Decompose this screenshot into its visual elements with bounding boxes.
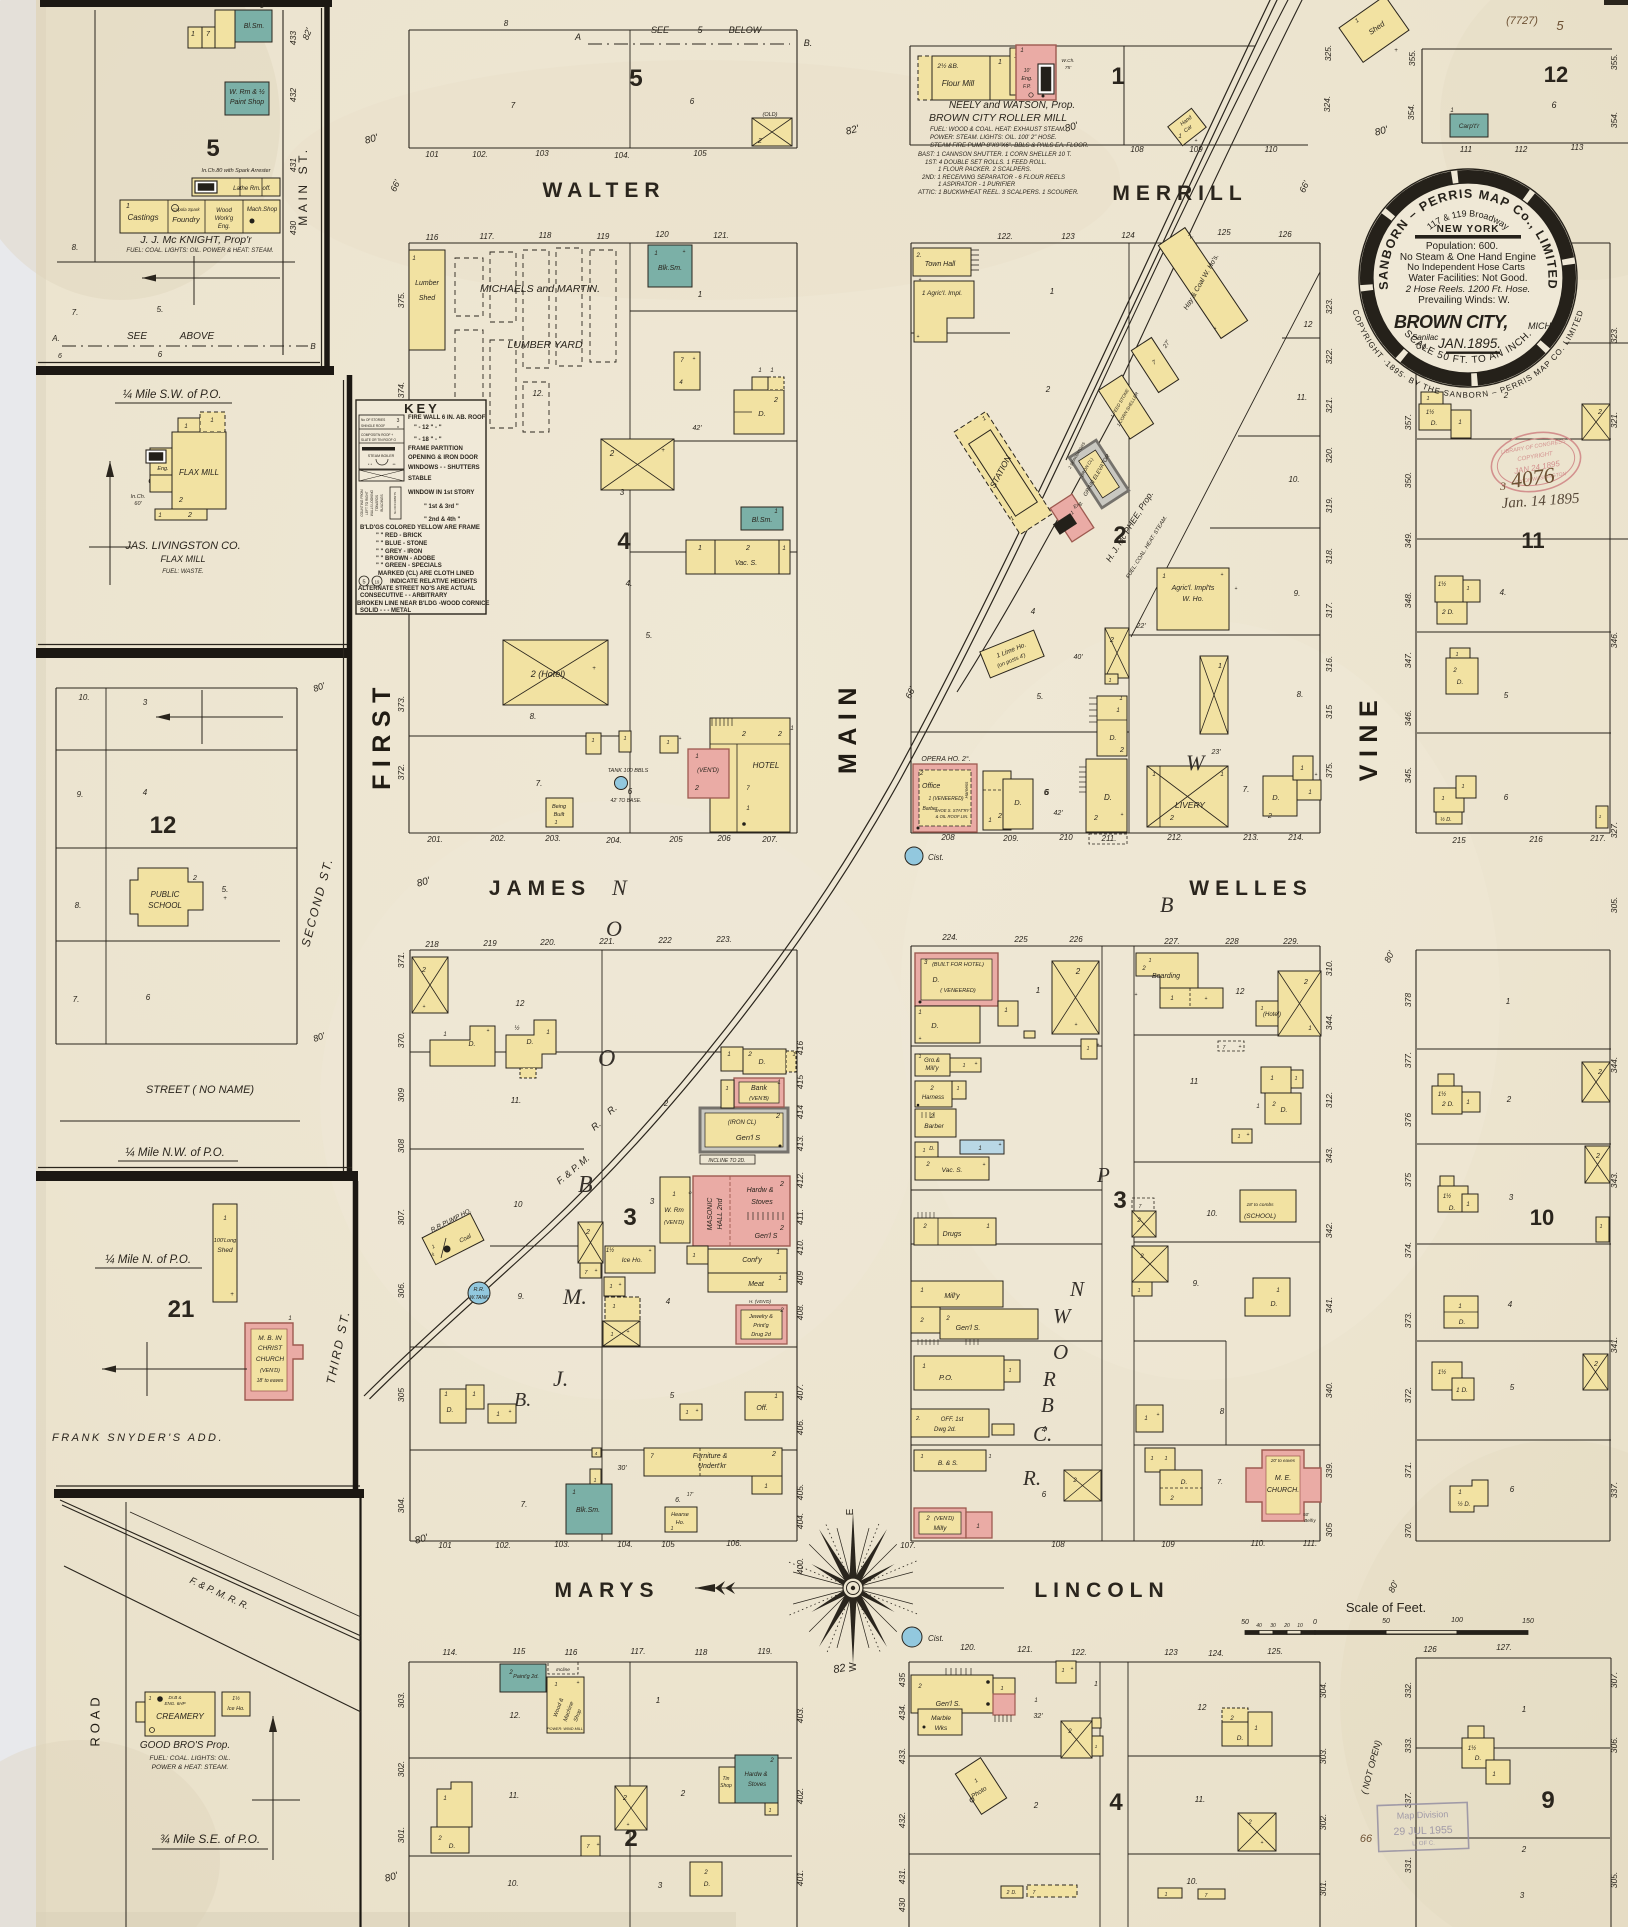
svg-text:8.: 8.	[1297, 690, 1304, 699]
svg-text:414: 414	[795, 1105, 805, 1119]
svg-text:2.: 2.	[915, 1416, 921, 1422]
svg-text:409: 409	[795, 1271, 805, 1285]
svg-text:+: +	[1097, 1042, 1100, 1048]
svg-text:+: +	[661, 448, 665, 454]
svg-text:1: 1	[1458, 1304, 1461, 1310]
svg-text:303.: 303.	[396, 1692, 406, 1709]
svg-text:327.: 327.	[1609, 822, 1619, 839]
svg-text:109: 109	[1161, 1540, 1175, 1549]
svg-text:346.: 346.	[1609, 632, 1619, 649]
svg-text:D.: D.	[1012, 1890, 1017, 1896]
svg-text:Population: 600.: Population: 600.	[1426, 241, 1498, 252]
svg-text:Gen'l S: Gen'l S	[736, 1133, 760, 1142]
svg-text:6: 6	[1504, 793, 1509, 802]
svg-text:10': 10'	[1024, 68, 1032, 74]
svg-text:349.: 349.	[1403, 532, 1413, 549]
svg-text:12.: 12.	[509, 1711, 520, 1720]
svg-text:116: 116	[565, 1648, 578, 1657]
svg-text:A.: A.	[51, 334, 60, 343]
svg-text:207.: 207.	[761, 835, 778, 844]
svg-text:3: 3	[1509, 1193, 1514, 1202]
svg-text:1: 1	[774, 1394, 777, 1400]
svg-text:Ice Ho.: Ice Ho.	[227, 1706, 244, 1712]
svg-text:2: 2	[694, 785, 699, 792]
svg-text:1 D.: 1 D.	[1456, 1387, 1468, 1394]
svg-text:D.: D.	[1110, 735, 1117, 742]
svg-text:1: 1	[1061, 1668, 1064, 1674]
svg-text:210: 210	[1058, 833, 1073, 842]
svg-text:432.: 432.	[897, 1812, 907, 1829]
svg-text:433: 433	[288, 31, 298, 45]
svg-text:B'LD'GS COLORED YELLOW ARE FRA: B'LD'GS COLORED YELLOW ARE FRAME	[360, 525, 480, 531]
svg-text:1: 1	[656, 1696, 660, 1705]
svg-text:321.: 321.	[1609, 412, 1619, 429]
svg-text:FLAX MILL: FLAX MILL	[160, 554, 205, 564]
svg-text:1: 1	[158, 513, 161, 519]
svg-text:SHINGLE ROOF: SHINGLE ROOF	[361, 424, 385, 428]
svg-text:9: 9	[1541, 1787, 1554, 1814]
svg-text:8.: 8.	[75, 901, 82, 910]
svg-text:Agric'l. Impl'ts: Agric'l. Impl'ts	[1171, 585, 1215, 592]
svg-text:218: 218	[424, 940, 439, 949]
svg-text:Shop: Shop	[720, 1783, 732, 1789]
svg-text:F.P.: F.P.	[1023, 84, 1031, 90]
svg-text:Dwg 2d.: Dwg 2d.	[934, 1427, 956, 1433]
svg-text:1½: 1½	[1438, 1091, 1446, 1098]
svg-text:406.: 406.	[795, 1419, 805, 1436]
svg-text:1: 1	[769, 1808, 772, 1814]
svg-text:312.: 312.	[1324, 1092, 1334, 1109]
svg-text:110: 110	[1265, 145, 1278, 154]
svg-text:+: +	[999, 1142, 1002, 1148]
svg-text:430: 430	[288, 221, 298, 235]
svg-text:104.: 104.	[617, 1540, 633, 1549]
svg-text:NEW YORK: NEW YORK	[1437, 224, 1500, 235]
svg-text:1: 1	[1456, 652, 1459, 658]
svg-text:7: 7	[511, 101, 516, 110]
svg-text:+: +	[423, 1004, 426, 1010]
svg-text:10: 10	[514, 1200, 523, 1209]
svg-text:Gen'l S.: Gen'l S.	[936, 1701, 961, 1708]
svg-text:100: 100	[1451, 1617, 1463, 1624]
svg-text:2: 2	[1452, 668, 1457, 674]
svg-text:5: 5	[206, 135, 219, 162]
svg-text:1: 1	[782, 546, 785, 552]
svg-text:+: +	[230, 1292, 234, 1298]
svg-text:109: 109	[1189, 145, 1203, 154]
svg-text:+: +	[1157, 1412, 1160, 1418]
svg-text:In.Ch.: In.Ch.	[131, 494, 146, 500]
svg-text:+: +	[592, 666, 596, 672]
svg-text:2: 2	[1597, 409, 1602, 416]
svg-text:12: 12	[1304, 320, 1313, 329]
svg-text:2: 2	[622, 1795, 627, 1802]
svg-text:347.: 347.	[1403, 652, 1413, 669]
svg-text:+: +	[1221, 572, 1224, 578]
svg-text:W: W	[1053, 1304, 1073, 1328]
svg-text:2: 2	[1033, 1801, 1039, 1810]
svg-text:+: +	[1121, 812, 1124, 818]
svg-text:Meat: Meat	[748, 1281, 765, 1288]
svg-text:W. Rm: W. Rm	[664, 1207, 684, 1214]
svg-text:1: 1	[1000, 1686, 1003, 1692]
svg-text:Vac. S.: Vac. S.	[735, 560, 757, 567]
svg-text:305.: 305.	[1609, 1872, 1619, 1889]
svg-text:Cist.: Cist.	[928, 1634, 944, 1643]
svg-text:1: 1	[671, 1526, 674, 1532]
svg-text:11.: 11.	[509, 1791, 520, 1800]
svg-text:6: 6	[628, 787, 633, 796]
svg-text:11.: 11.	[511, 1096, 522, 1105]
svg-text:Tin: Tin	[723, 1776, 730, 1782]
svg-text:(VEN'D): (VEN'D)	[260, 1368, 280, 1374]
svg-text:5.: 5.	[1037, 692, 1044, 701]
svg-text:+: +	[1261, 1840, 1264, 1846]
svg-text:2 D.: 2 D.	[1441, 609, 1454, 616]
svg-text:6: 6	[146, 993, 151, 1002]
svg-text:150: 150	[1522, 1618, 1534, 1625]
svg-text:1: 1	[1170, 996, 1173, 1002]
svg-text:5: 5	[1510, 1383, 1515, 1392]
svg-text:J. J. Mc KNIGHT, Prop'r: J. J. Mc KNIGHT, Prop'r	[139, 234, 252, 246]
svg-text:2: 2	[919, 1318, 924, 1324]
svg-text:ROAD: ROAD	[88, 1693, 103, 1746]
svg-text:1: 1	[746, 806, 749, 812]
svg-text:110.: 110.	[1251, 1539, 1266, 1548]
svg-text:371.: 371.	[1403, 1462, 1413, 1479]
svg-text:100'Long: 100'Long	[214, 1238, 237, 1244]
svg-text:6.: 6.	[675, 1497, 681, 1504]
svg-text:1: 1	[191, 31, 195, 38]
svg-text:4: 4	[1031, 607, 1036, 616]
svg-text:Bl.Sm.: Bl.Sm.	[752, 517, 773, 524]
svg-text:408.: 408.	[795, 1304, 805, 1321]
svg-text:Eng.: Eng.	[157, 466, 168, 472]
svg-text:1: 1	[920, 1288, 923, 1294]
svg-text:304.: 304.	[1318, 1682, 1328, 1699]
svg-text:Blk.Sm.: Blk.Sm.	[576, 1507, 600, 1514]
svg-text:N: N	[1069, 1277, 1085, 1301]
svg-text:+: +	[975, 1061, 978, 1067]
svg-text:1: 1	[126, 203, 130, 210]
svg-text:122.: 122.	[1071, 1648, 1087, 1657]
svg-text:1: 1	[727, 1052, 730, 1058]
svg-text:9.: 9.	[77, 790, 84, 799]
svg-text:Prevailing Winds: W.: Prevailing Winds: W.	[1418, 295, 1510, 306]
svg-text:7: 7	[1139, 1204, 1142, 1210]
svg-text:Stoves: Stoves	[748, 1782, 766, 1788]
svg-text:Mill'y: Mill'y	[944, 1293, 960, 1300]
svg-text:1: 1	[986, 1224, 989, 1230]
svg-text:JAN.1895.: JAN.1895.	[1437, 336, 1501, 351]
svg-text:FRANK SNYDER'S ADD.: FRANK SNYDER'S ADD.	[52, 1432, 224, 1444]
svg-text:(VEN'D): (VEN'D)	[697, 768, 719, 774]
svg-text:10.: 10.	[1206, 1209, 1217, 1218]
svg-text:2: 2	[192, 875, 197, 882]
svg-text:Marble: Marble	[931, 1715, 951, 1722]
svg-text:B: B	[310, 342, 316, 351]
svg-text:1: 1	[443, 1796, 446, 1802]
svg-text:1: 1	[1276, 1288, 1279, 1294]
svg-text:Off.: Off.	[756, 1405, 767, 1412]
svg-text:(VEN'D): (VEN'D)	[664, 1220, 684, 1226]
svg-text:2.: 2.	[915, 253, 921, 259]
svg-text:1: 1	[1522, 1705, 1526, 1714]
svg-text:2: 2	[421, 967, 426, 974]
svg-text:1: 1	[1308, 790, 1311, 796]
svg-text:1: 1	[923, 1148, 926, 1154]
svg-text:19: 19	[375, 580, 380, 585]
svg-text:66: 66	[1360, 1833, 1373, 1845]
svg-text:Mill'y: Mill'y	[925, 1066, 939, 1072]
svg-text:1: 1	[1506, 997, 1510, 1006]
svg-text:2: 2	[1247, 1820, 1252, 1826]
svg-text:2: 2	[997, 813, 1002, 820]
svg-text:2: 2	[1141, 966, 1146, 972]
svg-text:Eng.: Eng.	[218, 224, 230, 230]
svg-text:42': 42'	[692, 425, 702, 432]
svg-text:Ho.: Ho.	[676, 1520, 685, 1526]
svg-text:BELOW: BELOW	[729, 25, 763, 35]
svg-text:348.: 348.	[1403, 592, 1413, 609]
svg-text:H. (VEN'D): H. (VEN'D)	[749, 1299, 772, 1304]
svg-text:COUNTING FROM: COUNTING FROM	[360, 489, 364, 517]
svg-text:121.: 121.	[713, 231, 729, 240]
svg-text:301.: 301.	[396, 1827, 406, 1844]
svg-text:1: 1	[685, 1410, 688, 1416]
svg-text:Incline: Incline	[556, 1667, 570, 1673]
svg-text:P: P	[1096, 1163, 1110, 1187]
svg-text:339.: 339.	[1324, 1462, 1334, 1479]
svg-text:MARYS: MARYS	[554, 1579, 659, 1602]
svg-text:2 (Hotel): 2 (Hotel)	[530, 669, 566, 679]
svg-text:103: 103	[535, 149, 549, 158]
svg-text:COMPOSITN ROOF +: COMPOSITN ROOF +	[361, 433, 393, 437]
svg-text:1: 1	[998, 59, 1002, 66]
svg-text:372.: 372.	[396, 764, 406, 781]
svg-text:1 Agric'l. Impl.: 1 Agric'l. Impl.	[922, 290, 963, 297]
svg-text:D.: D.	[1271, 1301, 1278, 1308]
svg-text:W: W	[848, 1662, 859, 1672]
svg-text:1ST: 4 DOUBLE SET ROLLS. 1 FE: 1ST: 4 DOUBLE SET ROLLS. 1 FEED ROLL.	[925, 160, 1047, 166]
svg-text:21: 21	[168, 1296, 195, 1323]
svg-text:208: 208	[940, 833, 955, 842]
svg-text:17': 17'	[687, 1492, 695, 1498]
svg-text:Shed: Shed	[419, 295, 436, 302]
svg-text:10.: 10.	[1186, 1877, 1197, 1886]
svg-text:1: 1	[1254, 1726, 1257, 1732]
svg-text:1: 1	[1441, 796, 1444, 802]
svg-text:+: +	[983, 1162, 986, 1168]
svg-text:50': 50'	[1303, 1512, 1309, 1517]
svg-text:1: 1	[774, 509, 777, 515]
svg-text:20: 20	[1283, 1623, 1290, 1629]
svg-text:" " GREEN: " " GREEN - SPECIALS	[376, 563, 442, 569]
svg-text:127.: 127.	[1496, 1643, 1512, 1652]
svg-text:MASONIC: MASONIC	[707, 1197, 714, 1231]
svg-text:+: +	[1195, 138, 1198, 144]
svg-text:2: 2	[945, 1316, 950, 1322]
svg-text:1: 1	[572, 1490, 575, 1496]
svg-text:10.: 10.	[78, 693, 89, 702]
svg-text:D.: D.	[1459, 1319, 1466, 1326]
svg-text:1: 1	[1466, 1202, 1469, 1208]
svg-text:BROWN CITY ROLLER MILL: BROWN CITY ROLLER MILL	[929, 112, 1067, 124]
svg-text:VINE: VINE	[1355, 693, 1383, 781]
svg-text:3: 3	[143, 698, 148, 707]
svg-text:ENG. 6HP: ENG. 6HP	[164, 1701, 185, 1706]
svg-text:Water Facilities: Not Good.: Water Facilities: Not Good.	[1408, 273, 1527, 284]
svg-text:117.: 117.	[480, 232, 495, 241]
svg-text:" " BLUE: " " BLUE - STONE	[376, 541, 427, 547]
svg-text:+: +	[1315, 772, 1318, 778]
svg-text:2: 2	[1067, 1729, 1072, 1735]
svg-text:BROKEN LINE NEAR B'LDG -WOOD C: BROKEN LINE NEAR B'LDG -WOOD CORNICE	[357, 601, 489, 607]
svg-text:11: 11	[1521, 528, 1544, 553]
svg-text:1: 1	[919, 1054, 922, 1060]
svg-text:1: 1	[1492, 1772, 1495, 1778]
svg-text:1: 1	[443, 1032, 446, 1038]
svg-text:1: 1	[1256, 1104, 1259, 1110]
svg-text:7: 7	[1205, 1893, 1208, 1899]
svg-text:7.: 7.	[1217, 1479, 1223, 1486]
svg-text:Wood: Wood	[216, 208, 232, 214]
svg-text:371.: 371.	[396, 952, 406, 969]
svg-text:12: 12	[150, 812, 177, 839]
svg-text:" - 12 " - ": " - 12 " - "	[414, 425, 442, 431]
svg-text:Town Hall: Town Hall	[925, 261, 956, 268]
svg-text:1½: 1½	[1443, 1193, 1451, 1200]
svg-text:217.: 217.	[1589, 834, 1606, 843]
svg-text:1: 1	[444, 1392, 447, 1398]
svg-text:2: 2	[1109, 637, 1114, 644]
svg-text:434.: 434.	[897, 1704, 907, 1721]
svg-text:1: 1	[1466, 1100, 1469, 1106]
svg-text:1: 1	[591, 738, 594, 744]
svg-text:203.: 203.	[544, 834, 561, 843]
svg-text:Lathe Rm. off.: Lathe Rm. off.	[233, 186, 271, 192]
svg-text:P.O.: P.O.	[939, 1373, 953, 1382]
svg-text:JAMES: JAMES	[489, 877, 591, 900]
svg-text:1: 1	[672, 1192, 675, 1198]
svg-text:411.: 411.	[795, 1209, 805, 1225]
svg-text:2: 2	[925, 1516, 930, 1522]
svg-text:309: 309	[396, 1088, 406, 1102]
svg-text:2½ &B.: 2½ &B.	[936, 62, 959, 70]
svg-text:+: +	[223, 896, 227, 902]
svg-text:1: 1	[1600, 1224, 1603, 1230]
svg-text:227.: 227.	[1163, 937, 1180, 946]
svg-text:325.: 325.	[1323, 45, 1333, 62]
svg-text:2: 2	[1169, 1496, 1174, 1502]
svg-text:O: O	[1053, 1340, 1068, 1364]
svg-text:+: +	[509, 1409, 512, 1415]
svg-text:GOOD BRO'S Prop.: GOOD BRO'S Prop.	[140, 1740, 230, 1751]
svg-text:¼ Mile S.W. of P.O.: ¼ Mile S.W. of P.O.	[122, 389, 221, 401]
svg-text:8.: 8.	[72, 243, 79, 252]
svg-text:1: 1	[472, 1392, 475, 1398]
svg-text:1: 1	[776, 1250, 779, 1256]
svg-text:M. B. IN: M. B. IN	[258, 1335, 282, 1342]
svg-text:½ D.: ½ D.	[1440, 816, 1452, 823]
svg-text:7.: 7.	[536, 779, 543, 788]
svg-text:123: 123	[1164, 1648, 1178, 1657]
svg-text:82: 82	[832, 1662, 846, 1676]
svg-text:1: 1	[1164, 1456, 1167, 1462]
svg-text:214.: 214.	[1287, 833, 1304, 842]
svg-text:223.: 223.	[715, 935, 732, 944]
svg-text:& OIL ROOF LIN.: & OIL ROOF LIN.	[936, 814, 969, 819]
svg-text:220.: 220.	[539, 938, 556, 947]
svg-text:1: 1	[1220, 772, 1223, 778]
svg-text:1½: 1½	[232, 1695, 240, 1702]
svg-text:377.: 377.	[1403, 1052, 1413, 1069]
svg-text:+: +	[627, 1822, 630, 1828]
svg-text:216: 216	[1528, 835, 1543, 844]
svg-text:Being: Being	[552, 804, 567, 810]
svg-text:32': 32'	[1033, 1713, 1043, 1720]
svg-text:1: 1	[1050, 287, 1054, 296]
svg-text:D.: D.	[449, 1843, 456, 1850]
svg-text:1: 1	[918, 1010, 921, 1016]
svg-text:½ D.: ½ D.	[1458, 1501, 1471, 1508]
svg-text:1½: 1½	[606, 1247, 614, 1254]
svg-text:+: +	[597, 1842, 600, 1848]
svg-text:4: 4	[1109, 1789, 1123, 1816]
svg-text:40: 40	[1256, 1623, 1262, 1629]
svg-text:WELLES: WELLES	[1189, 877, 1313, 900]
svg-text:2: 2	[1593, 1361, 1598, 1368]
svg-text:42': 42'	[1053, 810, 1063, 817]
svg-text:Paint Shop: Paint Shop	[230, 99, 264, 106]
svg-text:¾ Mile S.E. of P.O.: ¾ Mile S.E. of P.O.	[160, 1832, 261, 1846]
svg-text:1 ASPIRATOR - 1 PURIFIER: 1 ASPIRATOR - 1 PURIFIER	[938, 182, 1016, 188]
svg-text:315: 315	[1324, 705, 1334, 719]
svg-text:SLATE OR TIN ROOF O: SLATE OR TIN ROOF O	[361, 438, 396, 442]
svg-text:404.: 404.	[795, 1513, 805, 1530]
svg-text:433.: 433.	[897, 1748, 907, 1765]
svg-text:6: 6	[58, 353, 62, 360]
svg-text:**: **	[392, 462, 396, 467]
svg-text:209.: 209.	[1002, 834, 1019, 843]
svg-text:9.: 9.	[518, 1292, 525, 1301]
svg-text:Harness: Harness	[922, 1095, 944, 1101]
svg-text:CHRIST: CHRIST	[258, 1345, 283, 1352]
svg-text:2: 2	[1093, 815, 1098, 822]
svg-text:R.R.: R.R.	[474, 1287, 485, 1293]
svg-text:SHOE S. STAT'RY: SHOE S. STAT'RY	[935, 808, 971, 813]
svg-text:D.: D.	[1281, 1107, 1288, 1114]
svg-text:357.: 357.	[1403, 414, 1413, 431]
svg-text:BUILDINGS: BUILDINGS	[380, 494, 384, 511]
svg-text:341.: 341.	[1609, 1337, 1619, 1354]
svg-text:1: 1	[1149, 958, 1152, 964]
svg-text:2: 2	[680, 1789, 686, 1798]
svg-text:+: +	[679, 736, 682, 742]
svg-text:431: 431	[288, 158, 298, 172]
svg-text:50: 50	[1382, 1618, 1390, 1625]
svg-text:342.: 342.	[1324, 1222, 1334, 1239]
svg-text:OPERA HO. 2°.: OPERA HO. 2°.	[921, 755, 970, 763]
svg-text:108: 108	[1130, 145, 1144, 154]
svg-text:107.: 107.	[900, 1541, 916, 1550]
svg-text:108: 108	[1051, 1540, 1065, 1549]
svg-text:SOLID - - - M: SOLID - - - METAL	[360, 608, 412, 614]
svg-text:337.: 337.	[1609, 1482, 1619, 1499]
svg-text:305: 305	[1324, 1523, 1334, 1537]
svg-text:1: 1	[654, 251, 657, 257]
svg-text:12: 12	[1236, 987, 1245, 996]
